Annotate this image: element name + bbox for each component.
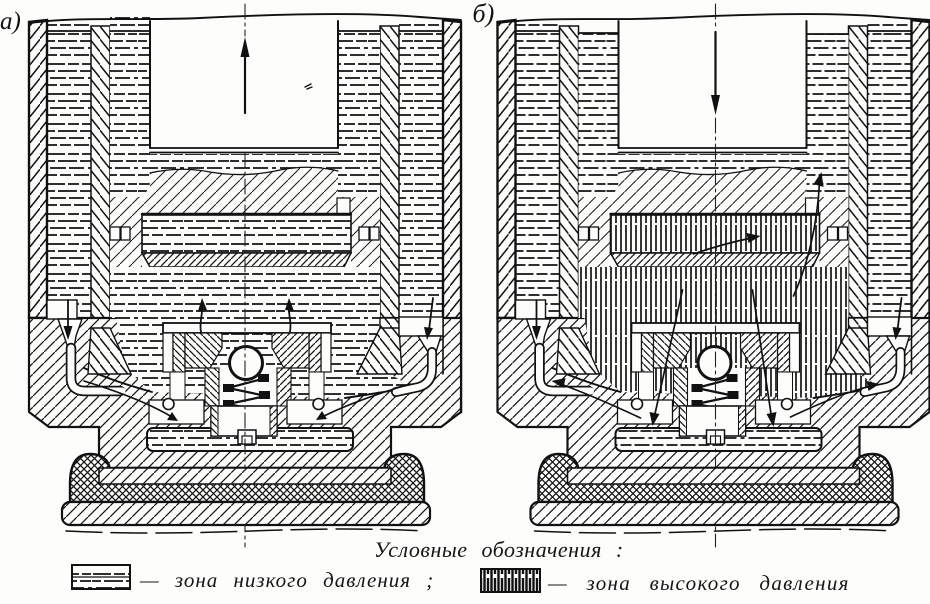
svg-text:— зона низкого давления ;: — зона низкого давления ;	[139, 568, 434, 592]
svg-text:— зона высокого давления: — зона высокого давления	[547, 571, 850, 595]
svg-text:а): а)	[0, 8, 21, 35]
svg-text:Условные обозначения :: Условные обозначения :	[374, 537, 624, 562]
svg-text:б): б)	[473, 0, 495, 28]
